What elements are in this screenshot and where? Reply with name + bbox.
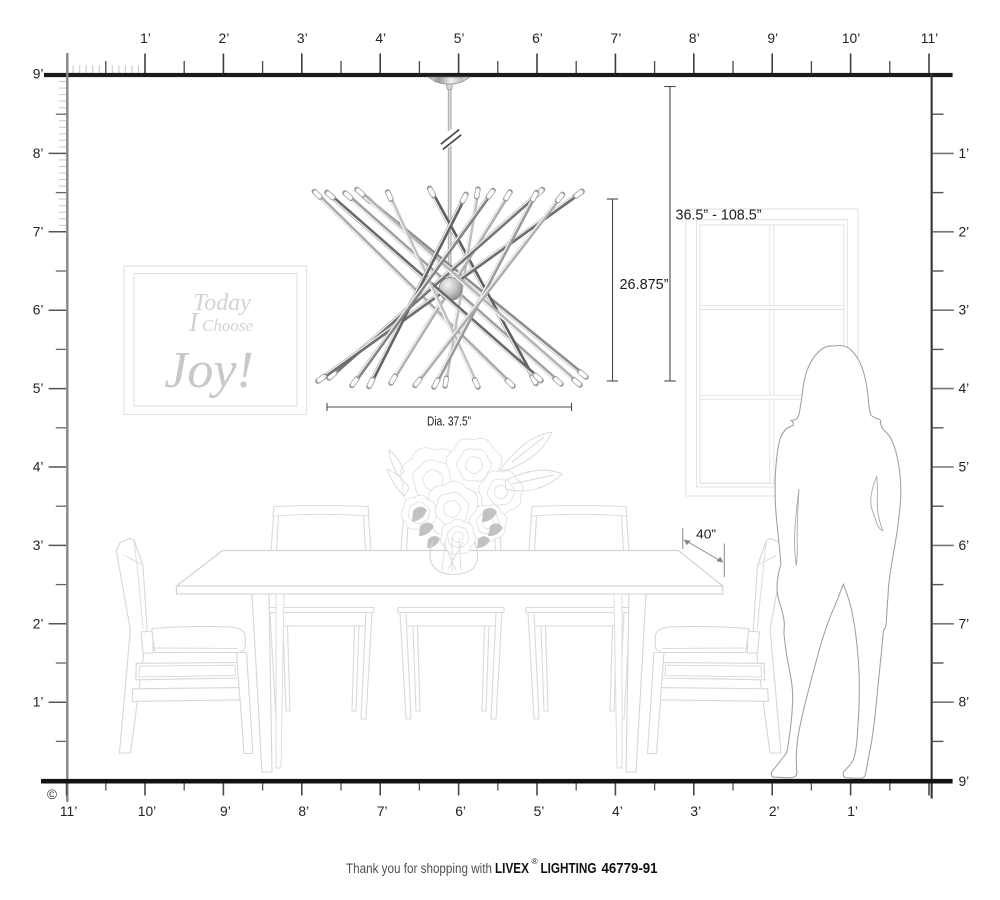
svg-text:9’: 9’: [767, 31, 778, 46]
svg-text:10’: 10’: [138, 804, 156, 819]
svg-text:7’: 7’: [959, 616, 970, 631]
svg-text:Dia. 37.5”: Dia. 37.5”: [427, 415, 471, 429]
svg-text:1’: 1’: [140, 31, 151, 46]
svg-text:2’: 2’: [959, 224, 970, 239]
svg-text:9’: 9’: [959, 774, 970, 789]
svg-text:7’: 7’: [611, 31, 622, 46]
svg-text:4’: 4’: [612, 804, 623, 819]
svg-text:5’: 5’: [454, 31, 465, 46]
svg-text:3’: 3’: [297, 31, 308, 46]
svg-text:7’: 7’: [377, 804, 388, 819]
svg-text:Joy!: Joy!: [164, 342, 253, 399]
svg-text:11’: 11’: [60, 804, 77, 819]
svg-text:5’: 5’: [959, 460, 970, 475]
svg-text:1’: 1’: [959, 146, 970, 161]
svg-text:1’: 1’: [847, 804, 858, 819]
svg-text:3’: 3’: [33, 538, 44, 553]
svg-text:36.5” - 108.5”: 36.5” - 108.5”: [676, 207, 762, 224]
svg-text:26.875”: 26.875”: [620, 276, 669, 293]
svg-text:©: ©: [47, 787, 57, 802]
svg-text:®: ®: [532, 856, 539, 866]
svg-text:Choose: Choose: [202, 316, 253, 335]
svg-text:2’: 2’: [33, 616, 44, 631]
svg-text:3’: 3’: [959, 303, 970, 318]
svg-text:8’: 8’: [689, 31, 700, 46]
svg-text:Today: Today: [193, 290, 251, 316]
svg-text:5’: 5’: [33, 381, 44, 396]
svg-text:9’: 9’: [220, 804, 231, 819]
svg-text:8’: 8’: [298, 804, 309, 819]
svg-text:3’: 3’: [690, 804, 701, 819]
svg-text:6’: 6’: [532, 31, 543, 46]
svg-text:LIVEX: LIVEX: [495, 861, 529, 877]
svg-text:2’: 2’: [219, 31, 230, 46]
svg-text:46779-91: 46779-91: [602, 861, 658, 877]
svg-text:11’: 11’: [921, 31, 938, 46]
svg-text:9’: 9’: [33, 67, 44, 82]
svg-text:Thank you for shopping with: Thank you for shopping with: [346, 861, 492, 876]
svg-text:1’: 1’: [33, 695, 44, 710]
svg-text:40”: 40”: [696, 527, 716, 542]
svg-text:8’: 8’: [33, 146, 44, 161]
svg-text:4’: 4’: [959, 381, 970, 396]
svg-text:4’: 4’: [375, 31, 386, 46]
svg-text:10’: 10’: [842, 31, 860, 46]
svg-text:7’: 7’: [33, 224, 44, 239]
svg-text:6’: 6’: [33, 303, 44, 318]
svg-text:6’: 6’: [455, 804, 466, 819]
svg-text:6’: 6’: [959, 538, 970, 553]
svg-text:5’: 5’: [534, 804, 545, 819]
svg-text:2’: 2’: [769, 804, 780, 819]
svg-text:8’: 8’: [959, 695, 970, 710]
svg-text:4’: 4’: [33, 460, 44, 475]
svg-text:LIGHTING: LIGHTING: [541, 861, 597, 877]
